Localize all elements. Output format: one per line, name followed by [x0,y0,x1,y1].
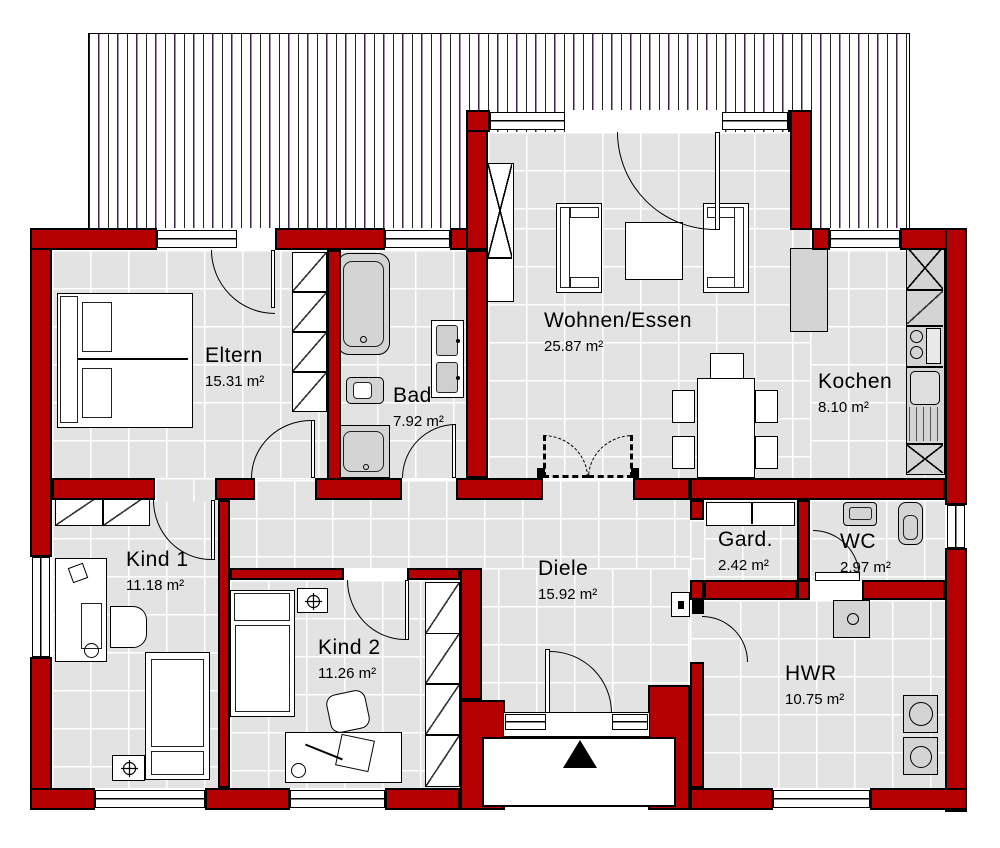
single-bed [230,590,295,717]
entrance-marker [563,740,597,768]
closet-box [292,332,327,372]
shelf-cabinet [487,163,514,302]
papers [335,734,375,772]
wardrobe-box [425,735,460,787]
tall-unit [907,445,943,473]
room-area: 11.26 m² [318,665,381,682]
kitchen-sink [926,328,941,364]
wardrobe-box [425,582,460,634]
sofa-armrest [570,277,599,288]
wall-segment [690,580,704,600]
wall-segment [466,110,490,132]
wall-segment [327,250,341,480]
wall-segment [205,788,290,810]
room-name: HWR [785,662,844,686]
room-area: 2.42 m² [718,557,773,574]
closet-box [292,252,327,292]
wall-segment [862,580,945,600]
kitchen-counter [906,246,945,475]
wc-sink [843,502,877,526]
wall-segment [633,478,690,500]
tall-unit [907,247,943,289]
room-label-gard: Gard. 2.42 m² [718,528,773,574]
wall-segment [797,500,810,580]
room-name: WC [840,530,891,554]
room-area: 11.18 m² [126,577,189,594]
window [490,112,565,130]
bed-pillow [82,302,112,352]
wall-segment [456,478,543,500]
room-diele-floor-upper [218,480,690,568]
sofa-left [556,203,602,293]
room-area: 15.31 m² [205,373,264,390]
room-label-eltern: Eltern 15.31 m² [205,344,264,390]
wall-segment [812,228,830,250]
room-area: 8.10 m² [818,399,892,416]
counter-divider [907,325,943,327]
wall-segment [690,478,945,500]
dining-chair [755,390,778,423]
door-opening [237,228,275,250]
dining-chair [672,436,695,469]
wall-segment [385,788,460,810]
bed-mattress [151,659,204,747]
wall-segment [945,548,967,812]
window [773,790,870,808]
faucet [456,376,460,380]
nightstand [297,588,328,613]
washing-machine [903,695,938,733]
cooktop-burner [910,330,923,343]
wall-segment [52,478,155,500]
room-label-kochen: Kochen 8.10 m² [818,370,892,416]
drain [363,464,369,470]
desk-chair [110,606,147,648]
window [290,790,385,808]
bed-headboard [60,296,78,423]
door-leaf [715,132,720,230]
desk [285,732,402,783]
bed-foot-box [151,751,204,775]
sofa-backrest [734,207,744,288]
wall-segment [466,250,488,478]
faucet [456,339,460,343]
tall-cabinet [790,248,828,332]
passage-gard [690,520,704,580]
dining-table [697,378,755,478]
single-bed [145,652,210,780]
bathtub [337,253,390,355]
room-area: 15.92 m² [538,586,597,603]
washer-door [909,702,933,726]
double-bed [57,293,193,428]
wc-toilet [898,502,923,545]
desk-lamp [68,563,89,584]
room-label-diele: Diele 15.92 m² [538,557,597,603]
toilet-bowl [903,515,918,540]
door-leaf [211,500,215,560]
lamp-symbol [121,760,138,777]
room-label-kind1: Kind 1 11.18 m² [126,548,189,594]
room-label-wohnen: Wohnen/Essen 25.87 m² [544,309,692,355]
panel-symbol [678,601,684,609]
shower [337,425,390,478]
toilet-bowl [353,382,372,399]
floor-plan: Eltern 15.31 m² Bad 7.92 m² Wohnen/Essen… [0,0,1000,848]
wall-segment [407,568,460,580]
electrical-panel [671,592,690,617]
window [157,230,237,248]
closet-box [292,372,327,412]
desk [55,558,107,662]
garderobe-shelf [706,502,795,526]
wardrobe-box [425,684,460,735]
dining-chair [672,390,695,423]
room-name: Diele [538,557,597,581]
lamp-symbol [305,593,322,610]
wall-segment [215,478,255,500]
sink-basin [436,325,458,356]
wall-segment [275,228,385,250]
wall-segment [870,788,967,810]
room-label-wc: WC 2.97 m² [840,530,891,576]
corner-unit [907,291,943,324]
door-jamb [692,600,704,614]
room-name: Kind 2 [318,636,381,660]
dining-chair [710,353,744,379]
bathtub-basin [343,261,384,347]
wall-segment [690,788,773,810]
cooktop-burner [910,346,923,359]
bed-pillow [82,368,112,418]
room-label-kind2: Kind 2 11.26 m² [318,636,381,682]
sidelight-window [505,714,546,730]
window [95,790,205,808]
room-area: 2.97 m² [840,559,891,576]
window [32,557,50,657]
sink-basin [849,507,872,520]
room-label-hwr: HWR 10.75 m² [785,662,844,708]
wall-segment [218,500,230,788]
room-name: Gard. [718,528,773,552]
refrigerator [910,371,940,405]
closet-box [292,292,327,332]
dryer-door [910,746,932,768]
door-leaf [311,420,315,478]
terrace-door-opening [565,110,722,132]
window [830,230,900,248]
room-name: Bad [393,384,444,408]
room-label-bad: Bad 7.92 m² [393,384,444,430]
room-name: Eltern [205,344,264,368]
room-area: 7.92 m² [393,413,444,430]
shelf-divider [751,503,753,524]
room-name: Wohnen/Essen [544,309,692,333]
wall-segment [30,788,95,810]
sofa-backrest [560,207,570,288]
wardrobe-box [425,633,460,684]
room-area: 10.75 m² [785,691,844,708]
window [947,505,965,548]
wall-segment [690,662,704,788]
wall-segment [460,568,482,700]
toilet [346,377,384,404]
wall-segment [30,228,157,250]
window [385,230,450,248]
wall-segment [315,478,402,500]
utility-sink [833,600,870,638]
mattress-divider [78,358,188,360]
room-name: Kind 1 [126,548,189,572]
door-leaf [405,580,409,640]
wall-segment [797,580,810,600]
sofa-armrest [707,277,735,288]
bed-pillow [234,593,290,621]
room-area: 25.87 m² [544,338,692,355]
wall-segment [230,568,344,580]
wall-segment [690,500,704,520]
drain [360,336,367,343]
sofa-armrest [570,207,599,218]
bed-mattress [235,625,290,712]
wall-segment [945,228,967,505]
dryer [903,737,938,775]
dining-chair [755,436,778,469]
wall-segment [30,228,52,557]
cabinet-divider [488,257,512,259]
sidelight-window [612,714,648,730]
cabinet-fronts [909,407,942,441]
desk-stool [291,763,306,778]
cabinet-cross [488,164,512,257]
passage-kind1 [155,478,218,502]
desk-stool [84,643,99,658]
coffee-table [625,222,683,280]
nightstand [112,755,145,781]
wall-segment [704,580,797,600]
window [722,112,788,130]
wall-segment [790,110,812,230]
drain [847,613,859,625]
counter-divider [907,366,943,368]
room-name: Kochen [818,370,892,394]
